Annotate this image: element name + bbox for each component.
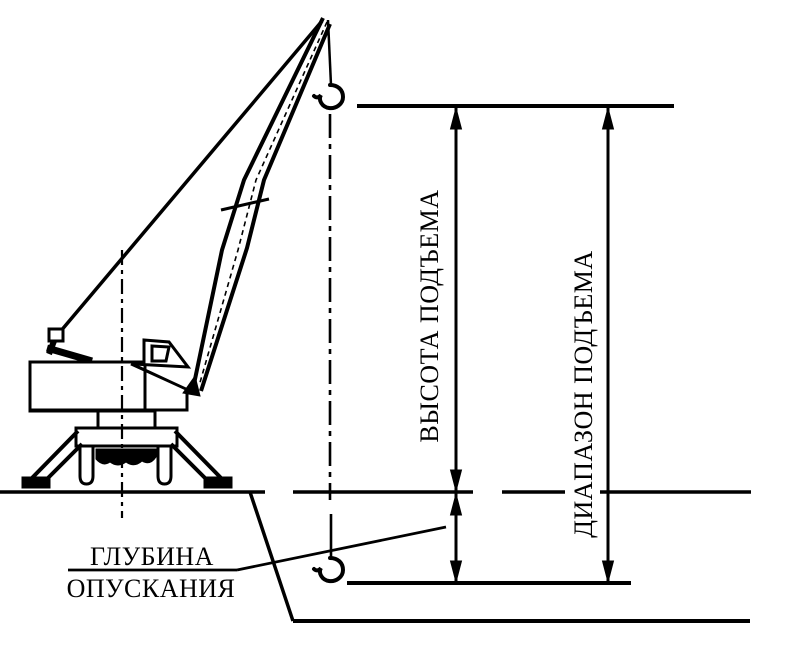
- outrigger-base: [76, 428, 177, 446]
- lift-range-label: ДИАПАЗОН ПОДЪЕМА: [569, 250, 598, 537]
- arrowhead-down: [603, 561, 614, 582]
- turntable: [98, 411, 155, 428]
- boom-foot-pin: [183, 376, 200, 396]
- crawler-track: [96, 449, 156, 465]
- gantry-strut-diagonal: [47, 348, 92, 361]
- boom-cross-tick: [221, 199, 269, 210]
- outrigger-strut-right-2: [171, 444, 209, 482]
- machine-house: [30, 362, 145, 411]
- hoist-cable: [328, 20, 331, 85]
- crane-dimension-diagram: ВЫСОТА ПОДЪЕМА ДИАПАЗОН ПОДЪЕМА ГЛУБИНА …: [0, 0, 807, 662]
- cab-window: [152, 346, 169, 361]
- support-leg-left: [80, 446, 93, 484]
- support-leg-right: [158, 446, 171, 484]
- lower-hook-icon: [314, 558, 343, 581]
- outrigger-pad-left: [22, 477, 50, 488]
- arrowhead-up: [451, 108, 462, 129]
- lift-height-label: ВЫСОТА ПОДЪЕМА: [415, 189, 444, 442]
- lowering-depth-label-line2: ОПУСКАНИЯ: [67, 574, 236, 603]
- arrowhead-up: [451, 494, 462, 515]
- arrowhead-up: [603, 108, 614, 129]
- gantry-block: [49, 329, 63, 341]
- backstay-cable: [60, 21, 322, 332]
- outrigger-pad-right: [204, 477, 232, 488]
- pit-break-line: [250, 492, 293, 621]
- arrowhead-down: [451, 470, 462, 491]
- dimensions: [347, 106, 674, 583]
- outrigger-strut-left-2: [44, 444, 82, 482]
- lowering-depth-label-line1: ГЛУБИНА: [90, 542, 214, 571]
- diagram-canvas: ВЫСОТА ПОДЪЕМА ДИАПАЗОН ПОДЪЕМА ГЛУБИНА …: [0, 0, 807, 662]
- arrowhead-down: [451, 561, 462, 582]
- hoist: [314, 20, 343, 581]
- upper-hook-icon: [314, 85, 343, 108]
- boom-chord-right: [201, 24, 330, 391]
- crane: [22, 18, 330, 518]
